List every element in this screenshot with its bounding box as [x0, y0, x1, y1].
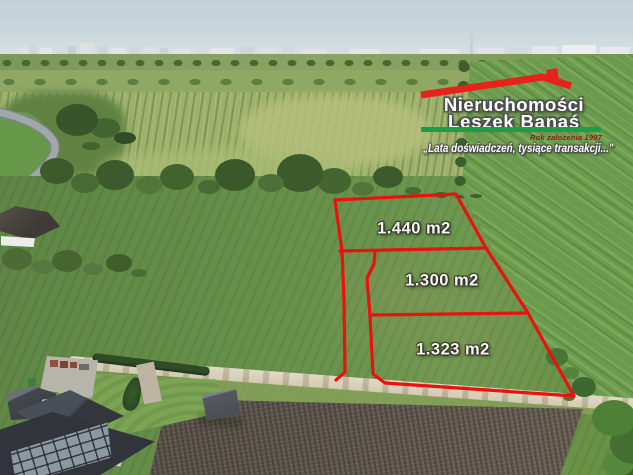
roof-logo-icon [412, 66, 632, 96]
plot-area-label-3: 1.323 m2 [416, 341, 490, 360]
logo-tagline: „Lata doświadczeń, tysiące transakcji...… [423, 143, 609, 155]
plot-area-label-2: 1.300 m2 [405, 272, 479, 291]
plot-boundary-outer [335, 194, 574, 396]
plot-area-label-1: 1.440 m2 [377, 220, 451, 239]
plot-divider-1 [340, 248, 486, 251]
logo-founded-text: Rok założenia 1997 [472, 133, 602, 142]
agency-logo: Nieruchomości Leszek Banaś Rok założenia… [412, 66, 632, 164]
plot-divider-2 [370, 313, 528, 315]
aerial-photo: 1.440 m2 1.300 m2 1.323 m2 Nieruchomości… [0, 0, 633, 475]
